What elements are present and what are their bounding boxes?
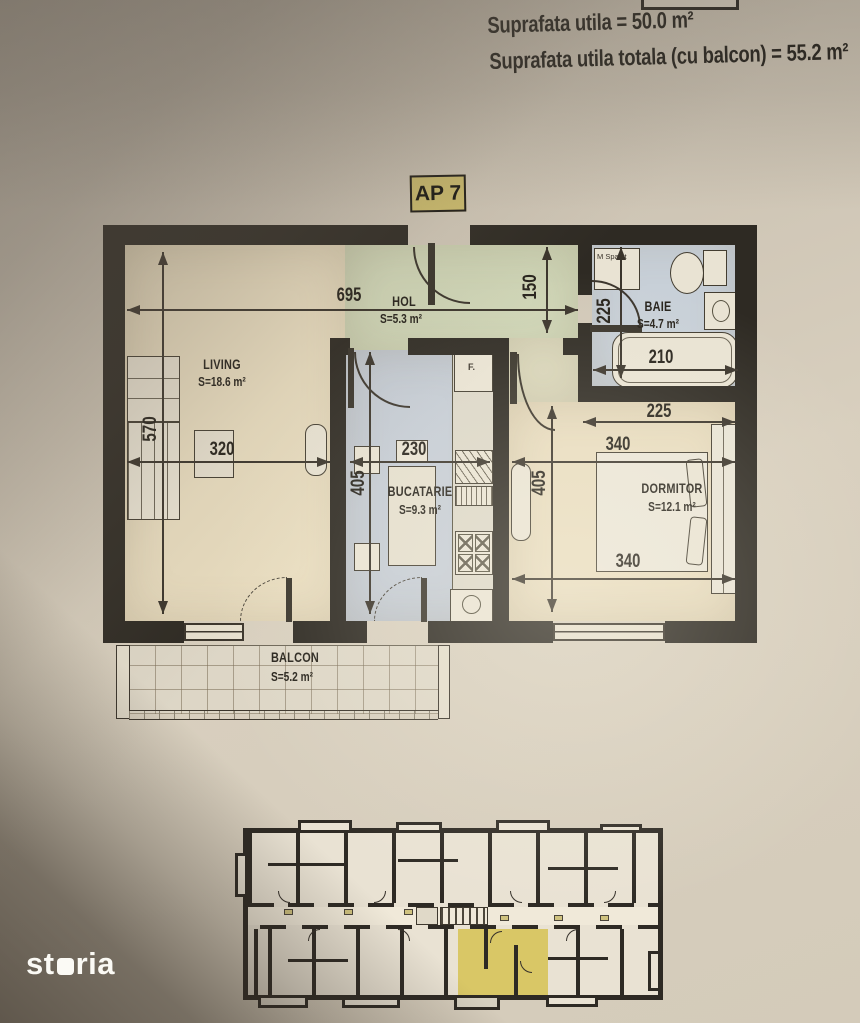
room-area-balcon: S=5.2 m² <box>271 669 313 684</box>
apartment-badge: AP 7 <box>410 175 467 213</box>
key-plan-elevator <box>416 907 438 925</box>
key-plan-wall <box>288 959 348 962</box>
key-plan-wall <box>514 945 518 995</box>
usable-area-text: Suprafata utila = 50.0 m² <box>487 6 694 39</box>
living-window <box>184 623 244 641</box>
dim-line <box>162 252 164 614</box>
key-plan-balcony <box>454 995 500 1010</box>
dim-arrow <box>547 406 557 419</box>
room-label-dormitor: DORMITOR <box>641 480 702 496</box>
wall <box>665 621 757 643</box>
dim-arrow <box>593 365 606 375</box>
key-plan-wall <box>538 957 608 960</box>
wall <box>103 621 184 643</box>
key-plan-balcony <box>258 995 308 1008</box>
dim-label-baie-depth: 225 <box>594 298 616 323</box>
balcony-side-wall <box>116 645 130 719</box>
key-plan-balcony <box>600 824 642 833</box>
key-plan-marker <box>554 915 563 921</box>
dim-arrow <box>127 305 140 315</box>
dim-arrow <box>722 457 735 467</box>
wall <box>470 225 757 245</box>
dim-line <box>512 461 735 463</box>
balcony-railing <box>129 710 438 720</box>
key-plan-balcony <box>298 820 352 833</box>
fridge-label: F. <box>468 362 475 372</box>
wall <box>578 245 592 295</box>
floor-plan-photo: Suprafata utila = 50.0 m² Suprafata util… <box>0 0 860 1023</box>
wall <box>578 386 735 402</box>
bedroom-armchair <box>511 463 531 541</box>
stove-burner <box>475 554 490 572</box>
wall <box>293 621 367 643</box>
watermark-text-post: ria <box>76 946 115 982</box>
stove-burner <box>458 554 473 572</box>
key-plan-stairs <box>440 907 488 925</box>
dim-arrow <box>365 352 375 365</box>
room-area-baie: S=4.7 m² <box>637 316 679 331</box>
room-label-living: LIVING <box>203 356 241 372</box>
key-plan-marker <box>500 915 509 921</box>
key-plan-balcony <box>496 820 550 833</box>
stove-burner <box>458 534 473 552</box>
toilet-icon <box>670 252 704 294</box>
watermark-square-o-icon <box>57 958 74 975</box>
dim-arrow <box>616 247 626 260</box>
dim-label-dorm-width-bottom: 340 <box>616 551 641 573</box>
kitchen-door-leaf <box>348 348 354 408</box>
key-plan <box>248 833 658 995</box>
kitchen-sink-drainer <box>455 450 493 484</box>
watermark-text-pre: st <box>26 946 55 982</box>
key-plan-balcony <box>648 951 661 991</box>
dim-label-hol-width: 695 <box>337 285 362 307</box>
key-plan-marker <box>600 915 609 921</box>
dim-arrow <box>722 417 735 427</box>
dim-line <box>512 578 735 580</box>
wardrobe <box>711 424 737 594</box>
key-plan-balcony <box>235 853 248 897</box>
room-label-bucatarie: BUCATARIE <box>388 483 453 499</box>
dim-arrow <box>565 305 578 315</box>
dim-label-hol-depth: 150 <box>520 274 542 299</box>
dim-label-kitchen-width: 230 <box>402 439 427 461</box>
dim-label-dorm-width-top: 340 <box>606 434 631 456</box>
dim-line <box>350 461 490 463</box>
balcony-side-wall <box>438 645 450 719</box>
key-plan-wall <box>484 929 488 969</box>
dim-arrow <box>725 365 738 375</box>
key-plan-marker <box>284 909 293 915</box>
wall <box>735 225 757 643</box>
key-plan-wall <box>548 867 618 870</box>
dim-label-dorm-upper-width: 225 <box>647 401 672 423</box>
dim-line <box>127 309 578 311</box>
watermark-logo: stria <box>26 946 115 982</box>
key-plan-balcony <box>342 997 400 1008</box>
dim-label-living-width: 320 <box>210 439 235 461</box>
key-plan-wall <box>268 863 348 866</box>
dim-label-bathtub-width: 210 <box>649 347 674 369</box>
room-area-dormitor: S=12.1 m² <box>648 499 696 514</box>
key-plan-highlighted-unit <box>458 929 548 995</box>
wall <box>493 338 509 621</box>
dim-label-living-height: 570 <box>140 416 162 441</box>
armchair <box>305 424 327 476</box>
dim-arrow <box>127 457 140 467</box>
sink-basin <box>712 300 730 322</box>
kitchen-sink-bowl <box>462 595 481 614</box>
dim-line <box>551 406 553 612</box>
kitchen-counter-hatch <box>455 486 493 506</box>
wall <box>428 621 553 643</box>
room-label-baie: BAIE <box>644 298 671 314</box>
dim-arrow <box>547 599 557 612</box>
room-label-balcon: BALCON <box>271 649 319 665</box>
wall <box>330 338 346 621</box>
dim-label-dorm-height: 405 <box>529 470 551 495</box>
room-area-bucatarie: S=9.3 m² <box>399 502 441 517</box>
toilet-tank <box>703 250 727 286</box>
dim-arrow <box>583 417 596 427</box>
dim-arrow <box>350 457 363 467</box>
chair <box>354 543 380 571</box>
dim-label-kitchen-height: 405 <box>348 470 370 495</box>
dim-arrow <box>317 457 330 467</box>
key-plan-wall <box>398 859 458 862</box>
dim-arrow <box>512 457 525 467</box>
living-shelf-unit <box>127 356 180 422</box>
stove-burner <box>475 534 490 552</box>
dim-arrow <box>542 320 552 333</box>
dim-line <box>127 461 330 463</box>
dim-arrow <box>158 252 168 265</box>
dim-arrow <box>158 601 168 614</box>
bedroom-window <box>553 623 665 641</box>
room-area-living: S=18.6 m² <box>198 374 246 389</box>
key-plan-marker <box>404 909 413 915</box>
bedroom-door-leaf <box>510 352 517 404</box>
key-plan-balcony <box>396 822 442 833</box>
dim-arrow <box>512 574 525 584</box>
room-label-hol: HOL <box>392 293 416 309</box>
total-area-text: Suprafata utila totala (cu balcon) = 55.… <box>489 38 849 75</box>
wall <box>103 225 408 245</box>
bathtub-inner <box>618 337 732 383</box>
dim-arrow <box>722 574 735 584</box>
dim-arrow <box>365 601 375 614</box>
room-area-hol: S=5.3 m² <box>380 311 422 326</box>
dim-line <box>620 247 622 378</box>
dim-arrow <box>477 457 490 467</box>
dim-arrow <box>616 365 626 378</box>
dim-arrow <box>542 247 552 260</box>
key-plan-marker <box>344 909 353 915</box>
key-plan-balcony <box>546 995 598 1007</box>
wall <box>103 225 125 643</box>
dim-line <box>593 369 738 371</box>
